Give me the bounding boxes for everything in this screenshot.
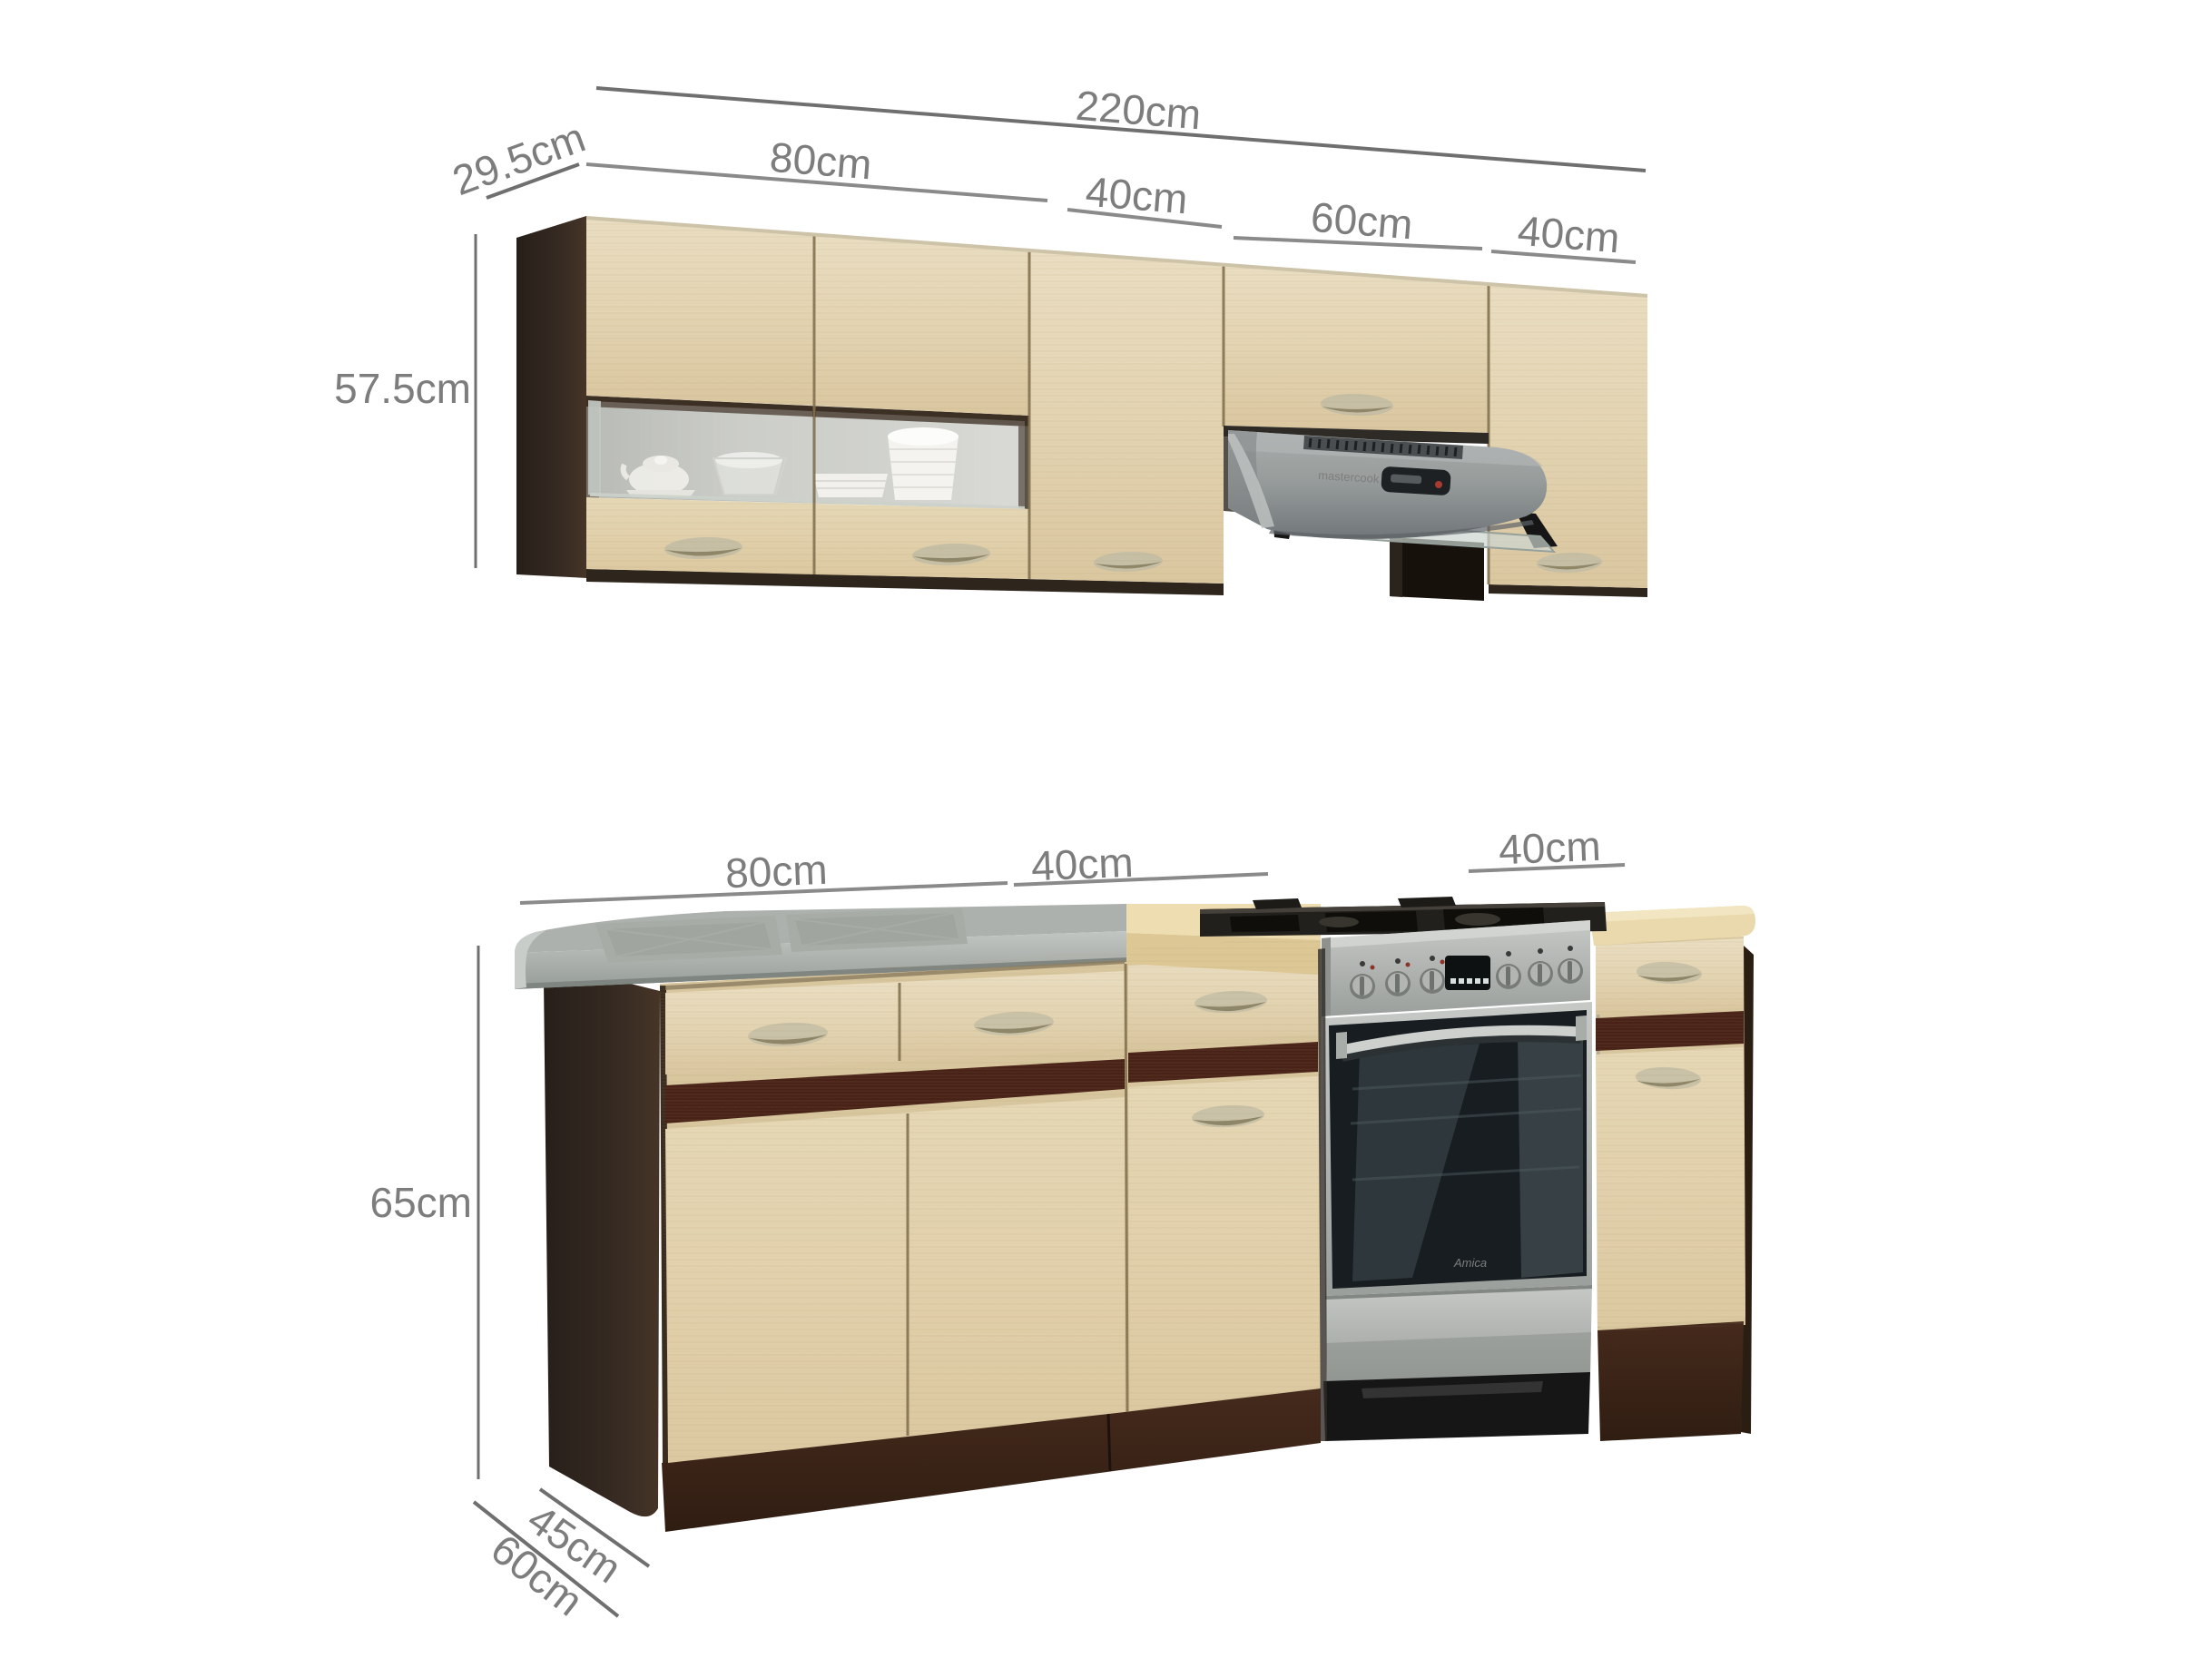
- svg-text:40cm: 40cm: [1516, 207, 1621, 262]
- svg-text:40cm: 40cm: [1084, 168, 1189, 223]
- svg-text:65cm: 65cm: [370, 1179, 472, 1226]
- svg-text:220cm: 220cm: [1074, 82, 1203, 139]
- svg-text:80cm: 80cm: [724, 846, 828, 897]
- svg-text:80cm: 80cm: [768, 133, 873, 189]
- svg-text:40cm: 40cm: [1498, 822, 1601, 873]
- svg-text:40cm: 40cm: [1030, 839, 1134, 889]
- svg-text:57.5cm: 57.5cm: [334, 365, 471, 412]
- svg-text:60cm: 60cm: [1309, 193, 1414, 249]
- svg-text:Amica: Amica: [1453, 1256, 1487, 1270]
